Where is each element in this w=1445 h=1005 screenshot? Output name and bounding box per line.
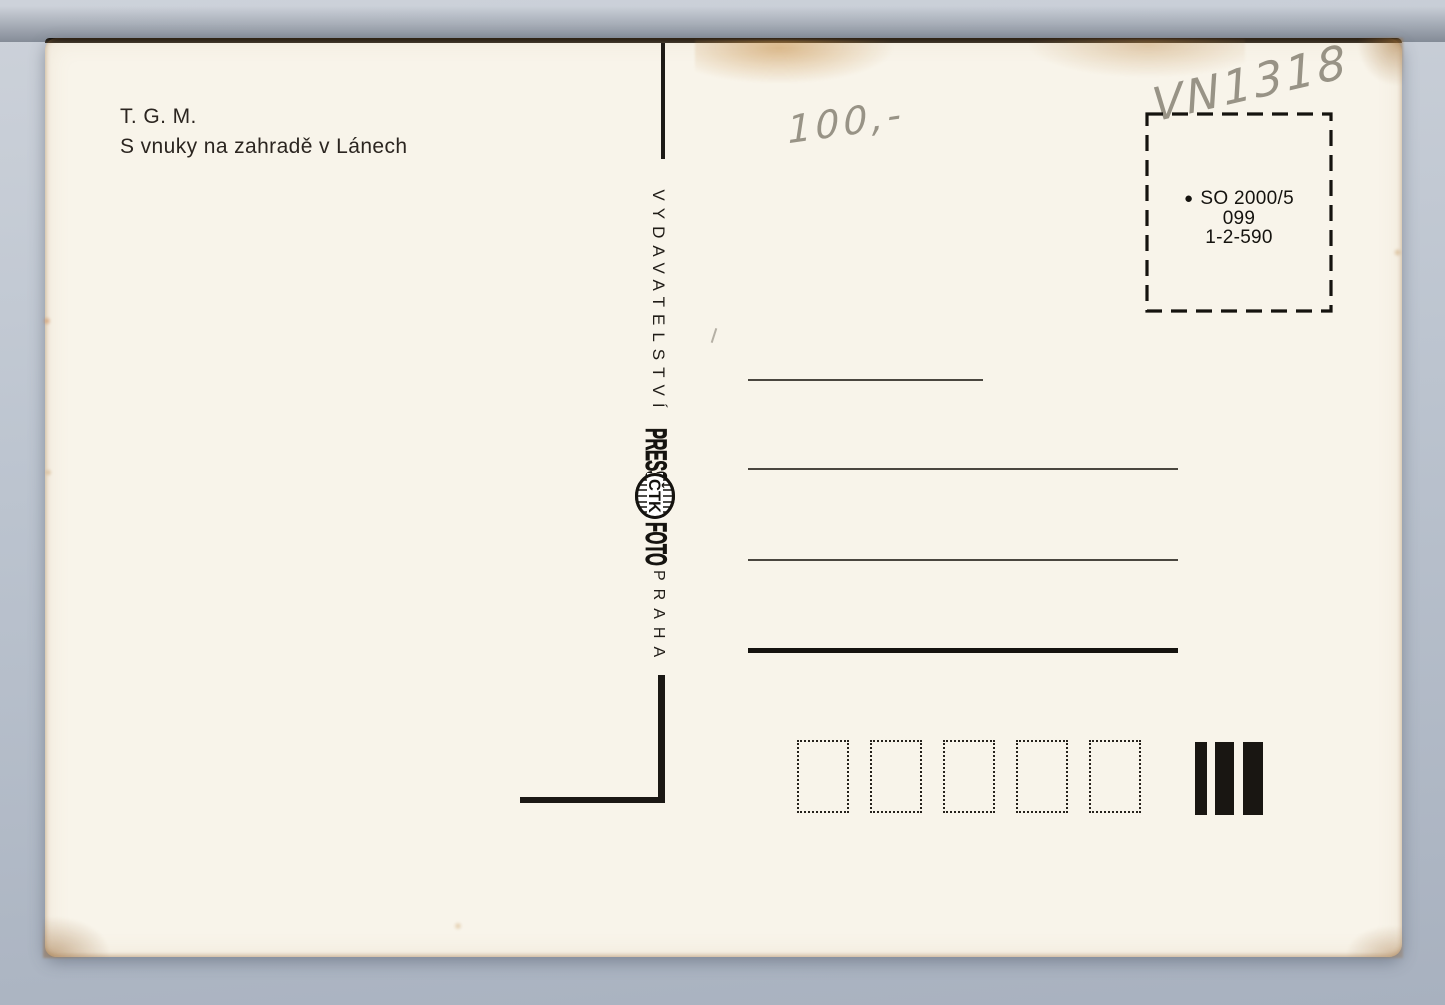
postal-code-box xyxy=(1089,740,1141,813)
postal-code-box xyxy=(943,740,995,813)
spine-rule-top xyxy=(661,43,665,159)
handwritten-price-note: 100,- xyxy=(787,92,906,153)
address-line-2 xyxy=(748,468,1178,470)
postal-code-box xyxy=(1016,740,1068,813)
postal-code-box xyxy=(870,740,922,813)
address-line-4-thick xyxy=(748,648,1178,653)
corner-wear-bottom-left xyxy=(43,916,111,958)
stamp-box: ● SO 2000/5 099 1-2-590 xyxy=(1145,112,1333,313)
stamp-code: 099 xyxy=(1223,209,1256,229)
bullet-icon: ● xyxy=(1184,189,1193,209)
logo-foto-text: FOTO xyxy=(635,522,675,565)
sorting-bar xyxy=(1195,742,1207,815)
address-line-3 xyxy=(748,559,1178,561)
corner-wear-bottom-right xyxy=(1347,926,1403,958)
scanner-background: T. G. M. S vnuky na zahradě v Lánech VN1… xyxy=(0,0,1445,1005)
caption: T. G. M. S vnuky na zahradě v Lánech xyxy=(120,102,407,162)
stain-top-center xyxy=(695,40,895,84)
corner-wear-top-right xyxy=(1357,38,1403,86)
spine-rule-bottom xyxy=(658,675,665,803)
foxing-spot xyxy=(1393,248,1402,257)
publisher-vertical-text: VYDAVATELSTVÍ xyxy=(645,182,671,422)
stamp-series: SO 2000/5 xyxy=(1200,189,1294,209)
postcard-back: T. G. M. S vnuky na zahradě v Lánech VN1… xyxy=(45,38,1402,957)
address-line-1 xyxy=(748,379,983,381)
scan-top-shadow xyxy=(0,6,1445,42)
postal-code-box xyxy=(797,740,849,813)
sorting-bar xyxy=(1243,742,1263,815)
pencil-stray-mark xyxy=(711,328,718,343)
foxing-spot xyxy=(45,468,52,477)
postal-code-boxes xyxy=(797,740,1141,813)
sorting-bar xyxy=(1215,742,1234,815)
spine-corner-rule xyxy=(520,797,665,803)
foxing-spot xyxy=(453,922,463,930)
logo-ctk-text: ČTK xyxy=(645,479,664,514)
pressfoto-ctk-logo: PRESS ČTK FOTO xyxy=(635,428,675,562)
city-vertical-text: PRAHA xyxy=(646,570,670,664)
caption-line1: T. G. M. xyxy=(120,102,407,132)
stamp-box-text: ● SO 2000/5 099 1-2-590 xyxy=(1145,112,1333,313)
stamp-print-run: 1-2-590 xyxy=(1205,228,1273,248)
ctk-globe-icon: ČTK xyxy=(635,473,675,519)
foxing-spot xyxy=(43,316,51,326)
caption-line2: S vnuky na zahradě v Lánech xyxy=(120,132,407,162)
